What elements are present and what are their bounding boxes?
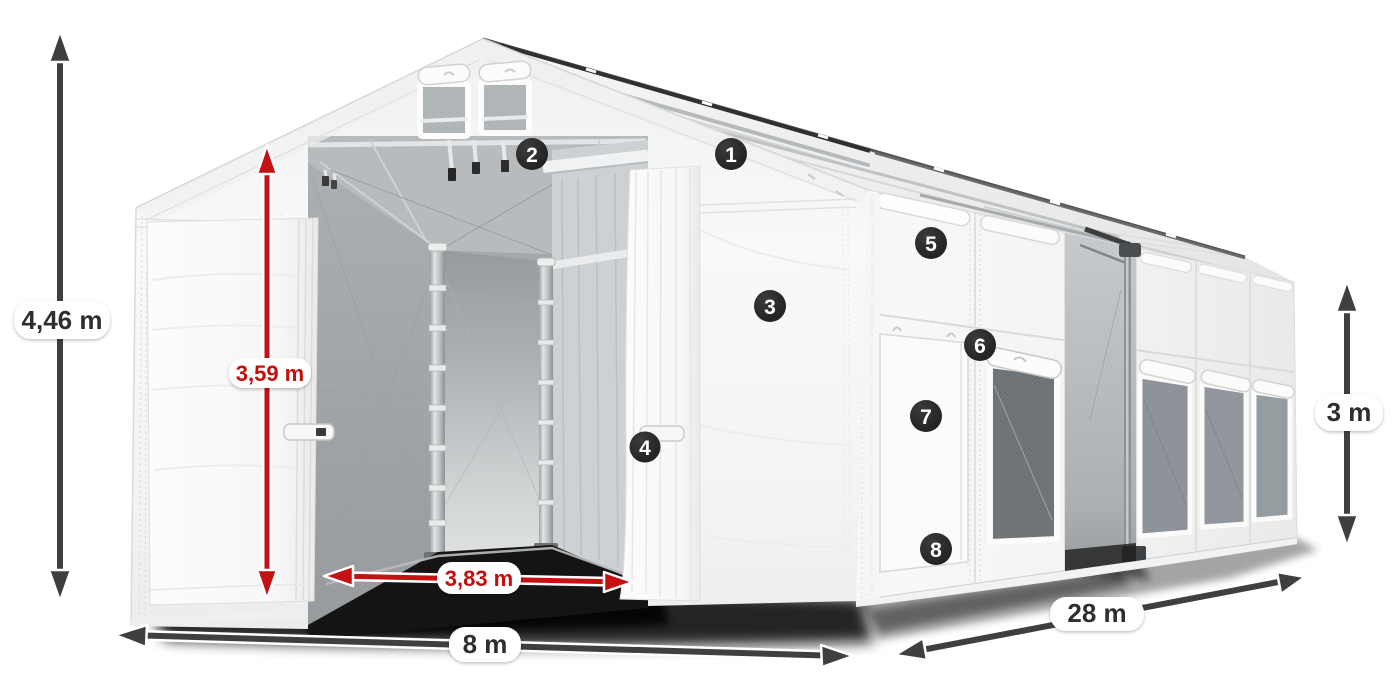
svg-text:28 m: 28 m — [1067, 598, 1126, 628]
svg-text:3: 3 — [764, 296, 776, 319]
svg-text:8: 8 — [930, 539, 942, 562]
svg-text:3 m: 3 m — [1327, 397, 1372, 427]
svg-text:3,83 m: 3,83 m — [445, 566, 514, 591]
svg-text:6: 6 — [974, 335, 986, 358]
svg-text:8 m: 8 m — [463, 629, 508, 659]
svg-text:7: 7 — [920, 406, 932, 429]
svg-text:5: 5 — [925, 233, 937, 256]
svg-text:4,46 m: 4,46 m — [22, 305, 103, 335]
svg-text:1: 1 — [725, 144, 737, 167]
svg-text:4: 4 — [639, 437, 651, 460]
svg-text:2: 2 — [526, 144, 538, 167]
svg-text:3,59 m: 3,59 m — [236, 361, 305, 386]
